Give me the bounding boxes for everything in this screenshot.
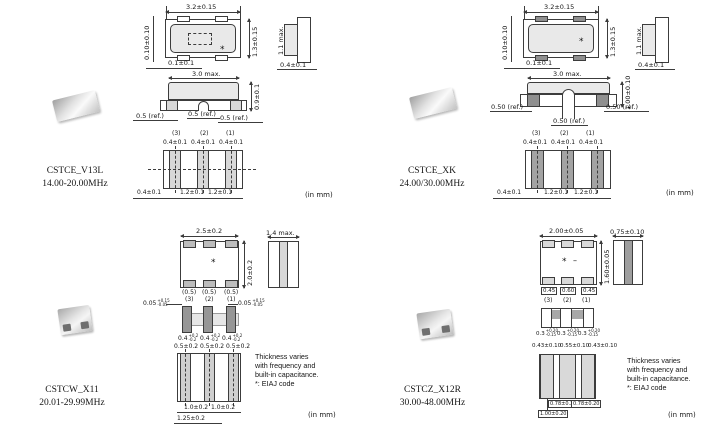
chip-image xyxy=(416,309,453,339)
chip-terminal xyxy=(441,325,450,333)
dim-tolerance: +0.20-0.15 xyxy=(588,329,600,338)
dim-pad-width-2: 0.60 xyxy=(560,287,576,295)
electrode xyxy=(560,308,572,328)
electrode-strip xyxy=(559,354,576,399)
pad xyxy=(542,240,555,248)
unit-note: (in mm) xyxy=(668,411,696,419)
side-view-element xyxy=(624,240,633,285)
note-line: Thickness varies xyxy=(627,356,722,365)
dim-pad-width-3: 0.45 xyxy=(541,287,557,295)
dim-line xyxy=(613,236,643,237)
product-photo xyxy=(417,310,453,338)
note-line: built-in capacitance. xyxy=(627,374,722,383)
dim-pad-width-1: 0.45 xyxy=(581,287,597,295)
dim-width-3: 0.43±0.10 xyxy=(532,343,561,349)
dim-electrode-2: 0.3+0.20-0.15 xyxy=(557,329,579,338)
pin-1-label: (1) xyxy=(582,297,591,304)
dim-pitch: 0.78±0.20 xyxy=(571,400,601,408)
polarity-mark: – xyxy=(573,256,577,265)
note-line: *: EIAJ code xyxy=(627,383,722,392)
dim-body-width: 2.00±0.05 xyxy=(549,227,583,235)
dim-base: 0.3 xyxy=(557,331,566,337)
eiaj-mark: * xyxy=(562,257,567,267)
dim-overall: 1.00±0.20 xyxy=(538,410,568,418)
dim-base: 0.3 xyxy=(578,331,587,337)
datasheet-canvas: CSTCE_V13L 14.00-20.00MHz 3.2±0.15 * 1.3… xyxy=(0,0,723,435)
extension-line xyxy=(547,399,548,410)
pin-2-label: (2) xyxy=(563,297,572,304)
dim-base: 0.3 xyxy=(536,331,545,337)
pad xyxy=(581,277,594,285)
pad xyxy=(542,277,555,285)
pad xyxy=(561,240,574,248)
part-frequency: 30.00-48.00MHz xyxy=(380,398,485,408)
electrode-strip xyxy=(581,354,595,399)
pin-3-label: (3) xyxy=(544,297,553,304)
panel-cstcz-x12r: CSTCZ_X12R 30.00-48.00MHz 2.00±0.05 * – … xyxy=(0,0,723,435)
thickness-note: Thickness varies with frequency and buil… xyxy=(627,356,722,393)
tol-minus: -0.15 xyxy=(588,333,600,337)
dim-line xyxy=(601,241,602,285)
part-name: CSTCZ_X12R xyxy=(380,385,485,395)
dim-width-2: 0.55±0.10 xyxy=(560,343,589,349)
dim-electrode-3: 0.3+0.20-0.15 xyxy=(536,329,558,338)
dim-width-1: 0.43±0.10 xyxy=(588,343,617,349)
electrode xyxy=(541,308,552,328)
dim-line xyxy=(540,236,597,237)
electrode-strip xyxy=(540,354,554,399)
pad xyxy=(561,277,574,285)
electrode xyxy=(583,308,594,328)
pad xyxy=(581,240,594,248)
dim-electrode-1: 0.3+0.20-0.15 xyxy=(578,329,600,338)
chip-terminal xyxy=(422,328,431,336)
dim-body-height: 1.60±0.05 xyxy=(603,250,611,284)
note-line: with frequency and xyxy=(627,365,722,374)
